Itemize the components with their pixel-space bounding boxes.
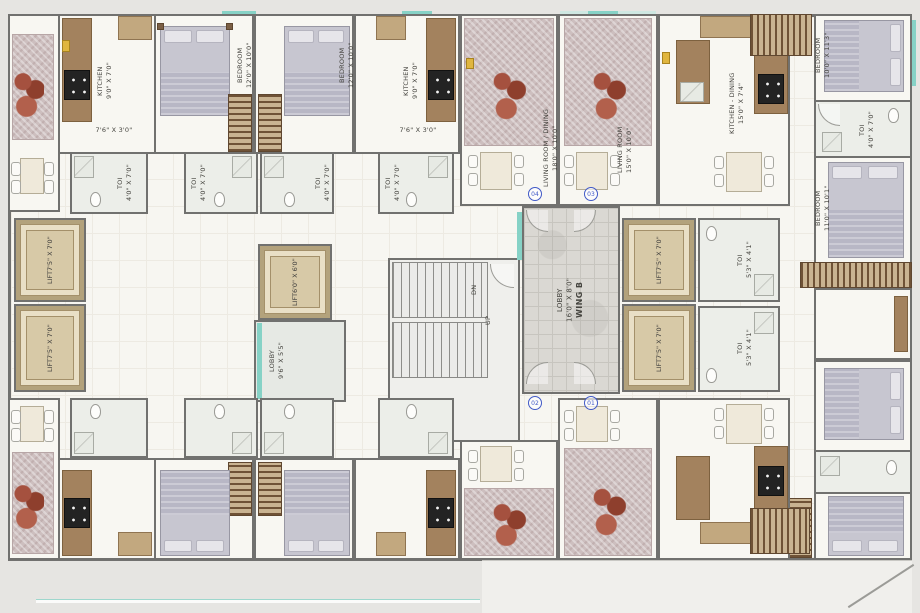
room-dim: 9'6" X 5'5": [277, 330, 286, 392]
bed-pillow: [890, 58, 901, 86]
shower-tray: [428, 432, 448, 454]
toilet-bowl: [706, 226, 717, 241]
bed-blanket: [161, 471, 229, 515]
dining-chair: [610, 410, 620, 423]
room-dim: 6'0" X 6'0": [291, 258, 299, 293]
room-dim: 4'0" X 7'0": [125, 160, 134, 206]
room-name: TOI: [384, 160, 393, 206]
room-name: KITCHEN - DINING: [728, 58, 737, 148]
teal-accent-strip: [257, 323, 262, 399]
kitchen-counter: [676, 456, 710, 520]
bed-blanket: [825, 369, 859, 439]
room-dim: 4'0" X 7'0": [323, 160, 332, 206]
kitchen-cabinet: [700, 522, 756, 544]
kitchen-cabinet: [700, 16, 756, 38]
bed-pillow: [890, 406, 901, 434]
room-dim: 5'3" X 4'1": [745, 236, 754, 284]
dining-chair: [564, 410, 574, 423]
passage-dim-label: 7'6" X 3'0": [82, 126, 146, 134]
toilet-bowl: [214, 404, 225, 419]
room-name: TOI: [314, 160, 323, 206]
room-dim: 15'0" X 7'4": [737, 58, 746, 148]
kitchen-cabinet: [118, 532, 152, 556]
toilet-bowl: [888, 108, 899, 123]
stairs-up-text: UP: [484, 310, 493, 330]
wardrobe: [228, 462, 252, 516]
stove: [758, 466, 784, 496]
dining-chair: [468, 173, 478, 186]
toilet-label: TOI 4'0" X 7'0": [384, 160, 402, 206]
room-name: BEDROOM: [236, 36, 245, 94]
wing-label: WING B: [575, 252, 586, 348]
plant: [592, 480, 626, 542]
dining-chair: [514, 155, 524, 168]
room-dim: 5'3" X 4'1": [745, 324, 754, 372]
dining-chair: [564, 428, 574, 441]
dining-table: [726, 404, 762, 444]
shower-tray: [754, 274, 774, 296]
bedroom-b-label: BEDROOM 12'0" X 10'0": [338, 36, 356, 94]
lift: LIFT 7'5" X 7'0": [622, 304, 696, 392]
wardrobe: [750, 14, 812, 56]
dining-table: [576, 152, 608, 190]
dining-chair: [564, 173, 574, 186]
room-dim: 7'5" X 7'0": [655, 324, 663, 359]
lift: LIFT 7'5" X 7'0": [14, 304, 86, 392]
plant: [14, 478, 44, 534]
toilet-bowl: [886, 460, 897, 475]
dining-chair: [44, 428, 54, 442]
shower-tray: [264, 156, 284, 178]
kitchen-b-label: KITCHEN 9'0" X 7'0": [402, 50, 420, 112]
toilet-bowl: [406, 404, 417, 419]
room-name: KITCHEN: [96, 50, 105, 112]
room-dim: 15'0" X 10'0": [625, 114, 634, 186]
toilet-label: TOI 4'0" X 7'0": [116, 160, 134, 206]
stove: [64, 70, 90, 100]
wardrobe: [258, 94, 282, 152]
unit-number-badge: 02: [528, 396, 542, 410]
stairs-up-label: UP: [484, 310, 493, 330]
dining-chair: [468, 450, 478, 463]
bed-blanket: [285, 471, 349, 515]
toilet-label: TOI 5'3" X 4'1": [736, 236, 754, 284]
passage-dim-label: 7'6" X 3'0": [386, 126, 450, 134]
room-name: TOI: [858, 110, 867, 150]
room-name: LIVING ROOM / DINING: [542, 108, 551, 188]
bed-pillow: [890, 372, 901, 400]
dining-table: [20, 406, 44, 442]
dining-chair: [468, 155, 478, 168]
kitchen-a-label: KITCHEN 9'0" X 7'0": [96, 50, 114, 112]
dining-chair: [11, 162, 21, 176]
small-lobby-label: LOBBY 9'6" X 5'5": [268, 330, 286, 392]
plant: [492, 498, 526, 550]
toilet-bowl: [214, 192, 225, 207]
bedroom-right-top-label: BEDROOM 10'0" X 11'3": [814, 24, 832, 86]
room-name: TOI: [736, 236, 745, 284]
wardrobe: [800, 262, 912, 288]
room-dim: 9'0" X 7'0": [411, 50, 420, 112]
toilet-bowl: [406, 192, 417, 207]
stove: [428, 498, 454, 528]
room-dim: 4'0" X 7'0": [867, 110, 876, 150]
room-dim: 12'0" X 10'0": [347, 36, 356, 94]
dresser-unit: [894, 296, 908, 352]
bed-pillow: [196, 540, 224, 552]
bed-pillow: [288, 30, 314, 43]
shower-tray: [74, 156, 94, 178]
bed-pillow: [832, 166, 862, 179]
bed-pillow: [832, 540, 862, 552]
room-dim: 9'0" X 7'0": [105, 50, 114, 112]
toilet-bowl: [284, 192, 295, 207]
room-name: BEDROOM: [814, 24, 823, 86]
dining-chair: [468, 468, 478, 481]
room-dim: 4'0" X 7'0": [393, 160, 402, 206]
dining-table: [576, 406, 608, 442]
bed-blanket: [829, 210, 903, 257]
lift: LIFT 6'0" X 6'0": [258, 244, 332, 320]
room-name: LIFT: [655, 271, 663, 284]
lift-label: LIFT 7'5" X 7'0": [624, 220, 694, 300]
room-name: LOBBY: [268, 330, 277, 392]
wardrobe: [258, 462, 282, 516]
toilet-bowl: [706, 368, 717, 383]
unit-number-badge: 03: [584, 187, 598, 201]
electrical-point: [62, 40, 70, 52]
dining-chair: [514, 468, 524, 481]
room-name: LIFT: [655, 359, 663, 372]
stairs-down-label: DN: [470, 280, 479, 300]
unit-number-badge: 01: [584, 396, 598, 410]
stairs-down-text: DN: [470, 280, 479, 300]
room-name: KITCHEN: [402, 50, 411, 112]
dining-chair: [764, 408, 774, 421]
room-name: LIFT: [46, 271, 54, 284]
kitchen-sink: [680, 82, 704, 102]
room-name: LOBBY: [556, 252, 565, 348]
bedroom-a-label: BEDROOM 12'0" X 10'0": [236, 36, 254, 94]
bedroom-right-mid-label: BEDROOM 11'0" X 10'1": [814, 176, 832, 240]
dining-chair: [764, 174, 774, 187]
lift: LIFT 7'5" X 7'0": [14, 218, 86, 302]
dining-table: [480, 152, 512, 190]
dining-chair: [564, 155, 574, 168]
bed-pillow: [318, 540, 344, 552]
dining-chair: [11, 410, 21, 424]
dining-chair: [514, 173, 524, 186]
room-name: LIFT: [291, 293, 299, 306]
toilet-bowl: [284, 404, 295, 419]
shower-tray: [822, 132, 842, 152]
shower-tray: [820, 456, 840, 476]
room-dim: 4'0" X 7'0": [199, 160, 208, 206]
room-name: LIVING ROOM: [616, 114, 625, 186]
bed-pillow: [164, 540, 192, 552]
dining-table: [20, 158, 44, 194]
stove: [64, 498, 90, 528]
dining-chair: [714, 408, 724, 421]
dining-chair: [44, 410, 54, 424]
kitchen-cabinet: [376, 532, 406, 556]
dining-chair: [764, 426, 774, 439]
room-name: LIFT: [46, 359, 54, 372]
dining-chair: [714, 156, 724, 169]
dining-chair: [764, 156, 774, 169]
room-dim: 12'0" X 10'0": [245, 36, 254, 94]
dining-chair: [11, 180, 21, 194]
electrical-point: [466, 58, 474, 69]
bed-pillow: [288, 540, 314, 552]
room-name: TOI: [190, 160, 199, 206]
wardrobe: [228, 94, 252, 152]
room-name: BEDROOM: [338, 36, 347, 94]
plant: [14, 66, 44, 122]
shower-tray: [74, 432, 94, 454]
bed-post: [157, 23, 164, 30]
lift: LIFT 7'5" X 7'0": [622, 218, 696, 302]
compound-wall-line: [36, 599, 480, 603]
kitchen-dining-label: KITCHEN - DINING 15'0" X 7'4": [728, 58, 746, 148]
room-name: TOI: [116, 160, 125, 206]
toilet-bowl: [90, 192, 101, 207]
stair-flight: [392, 322, 488, 378]
teal-accent-strip: [517, 212, 522, 260]
main-lobby-label: LOBBY 16'0" X 8'0" WING B: [556, 252, 586, 348]
dining-table: [726, 152, 762, 192]
bed-pillow: [868, 540, 898, 552]
room-dim: 10'0" X 11'3": [823, 24, 832, 86]
plant: [492, 64, 526, 126]
electrical-point: [662, 52, 670, 64]
dining-chair: [714, 426, 724, 439]
room-dim: 11'0" X 10'1": [823, 176, 832, 240]
floor-plan: KITCHEN 9'0" X 7'0" 7'6" X 3'0" BEDROOM …: [0, 0, 920, 613]
bed-blanket: [829, 497, 903, 533]
kitchen-cabinet: [376, 16, 406, 40]
bed-blanket: [161, 72, 229, 115]
dining-table: [480, 446, 512, 482]
lift-label: LIFT 6'0" X 6'0": [260, 246, 330, 318]
dining-chair: [514, 450, 524, 463]
room-dim: 7'5" X 7'0": [46, 324, 54, 359]
dining-chair: [44, 180, 54, 194]
bed-pillow: [890, 24, 901, 52]
shower-tray: [754, 312, 774, 334]
toilet-label: TOI 4'0" X 7'0": [190, 160, 208, 206]
bed-pillow: [868, 166, 898, 179]
stove: [428, 70, 454, 100]
shower-tray: [428, 156, 448, 178]
stove: [758, 74, 784, 104]
toilet-label: TOI 4'0" X 7'0": [314, 160, 332, 206]
lift-label: LIFT 7'5" X 7'0": [624, 306, 694, 390]
bed-post: [226, 23, 233, 30]
room-dim: 7'5" X 7'0": [46, 236, 54, 271]
toilet-label: TOI 4'0" X 7'0": [858, 110, 876, 150]
dining-chair: [44, 162, 54, 176]
dining-chair: [11, 428, 21, 442]
living-room-label: LIVING ROOM 15'0" X 10'0": [616, 114, 634, 186]
shower-tray: [232, 432, 252, 454]
unit-number-badge: 04: [528, 187, 542, 201]
bed-pillow: [196, 30, 224, 43]
room-name: BEDROOM: [814, 176, 823, 240]
room-dim: 7'5" X 7'0": [655, 236, 663, 271]
dining-chair: [610, 428, 620, 441]
toilet-bowl: [90, 404, 101, 419]
living-dining-label: LIVING ROOM / DINING 18'0" X 10'0": [542, 108, 560, 188]
shower-tray: [232, 156, 252, 178]
dining-chair: [714, 174, 724, 187]
lift-label: LIFT 7'5" X 7'0": [16, 306, 84, 390]
room-name: TOI: [736, 324, 745, 372]
bed-pillow: [164, 30, 192, 43]
lift-label: LIFT 7'5" X 7'0": [16, 220, 84, 300]
toilet-label: TOI 5'3" X 4'1": [736, 324, 754, 372]
room-dim: 18'0" X 10'0": [551, 108, 560, 188]
kitchen-cabinet: [118, 16, 152, 40]
wardrobe: [750, 508, 810, 554]
room-dim: 16'0" X 8'0": [565, 252, 574, 348]
shower-tray: [264, 432, 284, 454]
